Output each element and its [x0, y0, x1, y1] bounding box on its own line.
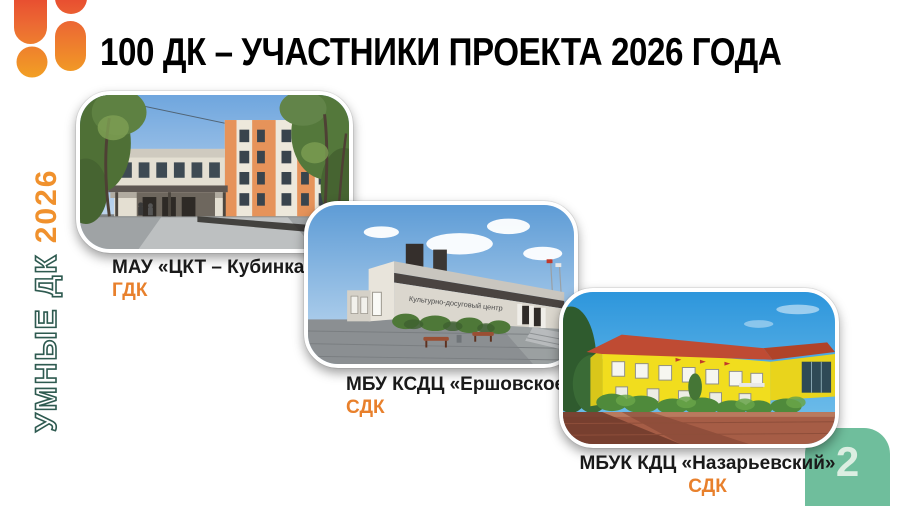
caption-kubinka: МАУ «ЦКТ – Кубинка» ГДК	[112, 256, 315, 302]
facility-type: СДК	[575, 475, 840, 498]
vertical-banner-year: 2026	[30, 169, 63, 244]
photo-ershovskoe-building: Культурно-досуговый центр	[304, 201, 578, 368]
vertical-banner: УМНЫЕ ДК2026	[27, 182, 67, 432]
photo-nazaryevsky-building	[559, 288, 839, 448]
vertical-banner-label: УМНЫЕ ДК	[30, 253, 63, 432]
facility-name: МБУК КДЦ «Назарьевский»	[575, 452, 840, 475]
facility-name: МАУ «ЦКТ – Кубинка»	[112, 256, 315, 279]
nazaryevsky-photo-illustration	[563, 292, 835, 444]
smart-clubs-logo-icon	[14, 0, 88, 80]
facility-type: ГДК	[112, 279, 315, 302]
caption-nazaryevsky: МБУК КДЦ «Назарьевский» СДК	[575, 452, 840, 498]
caption-ershovskoe: МБУ КСДЦ «Ершовское» СДК	[346, 373, 576, 419]
facility-name: МБУ КСДЦ «Ершовское»	[346, 373, 576, 396]
slide-title: 100 ДК – УЧАСТНИКИ ПРОЕКТА 2026 ГОДА	[100, 36, 781, 70]
ershovskoe-photo-illustration: Культурно-досуговый центр	[308, 205, 574, 364]
facility-type: СДК	[346, 396, 576, 419]
